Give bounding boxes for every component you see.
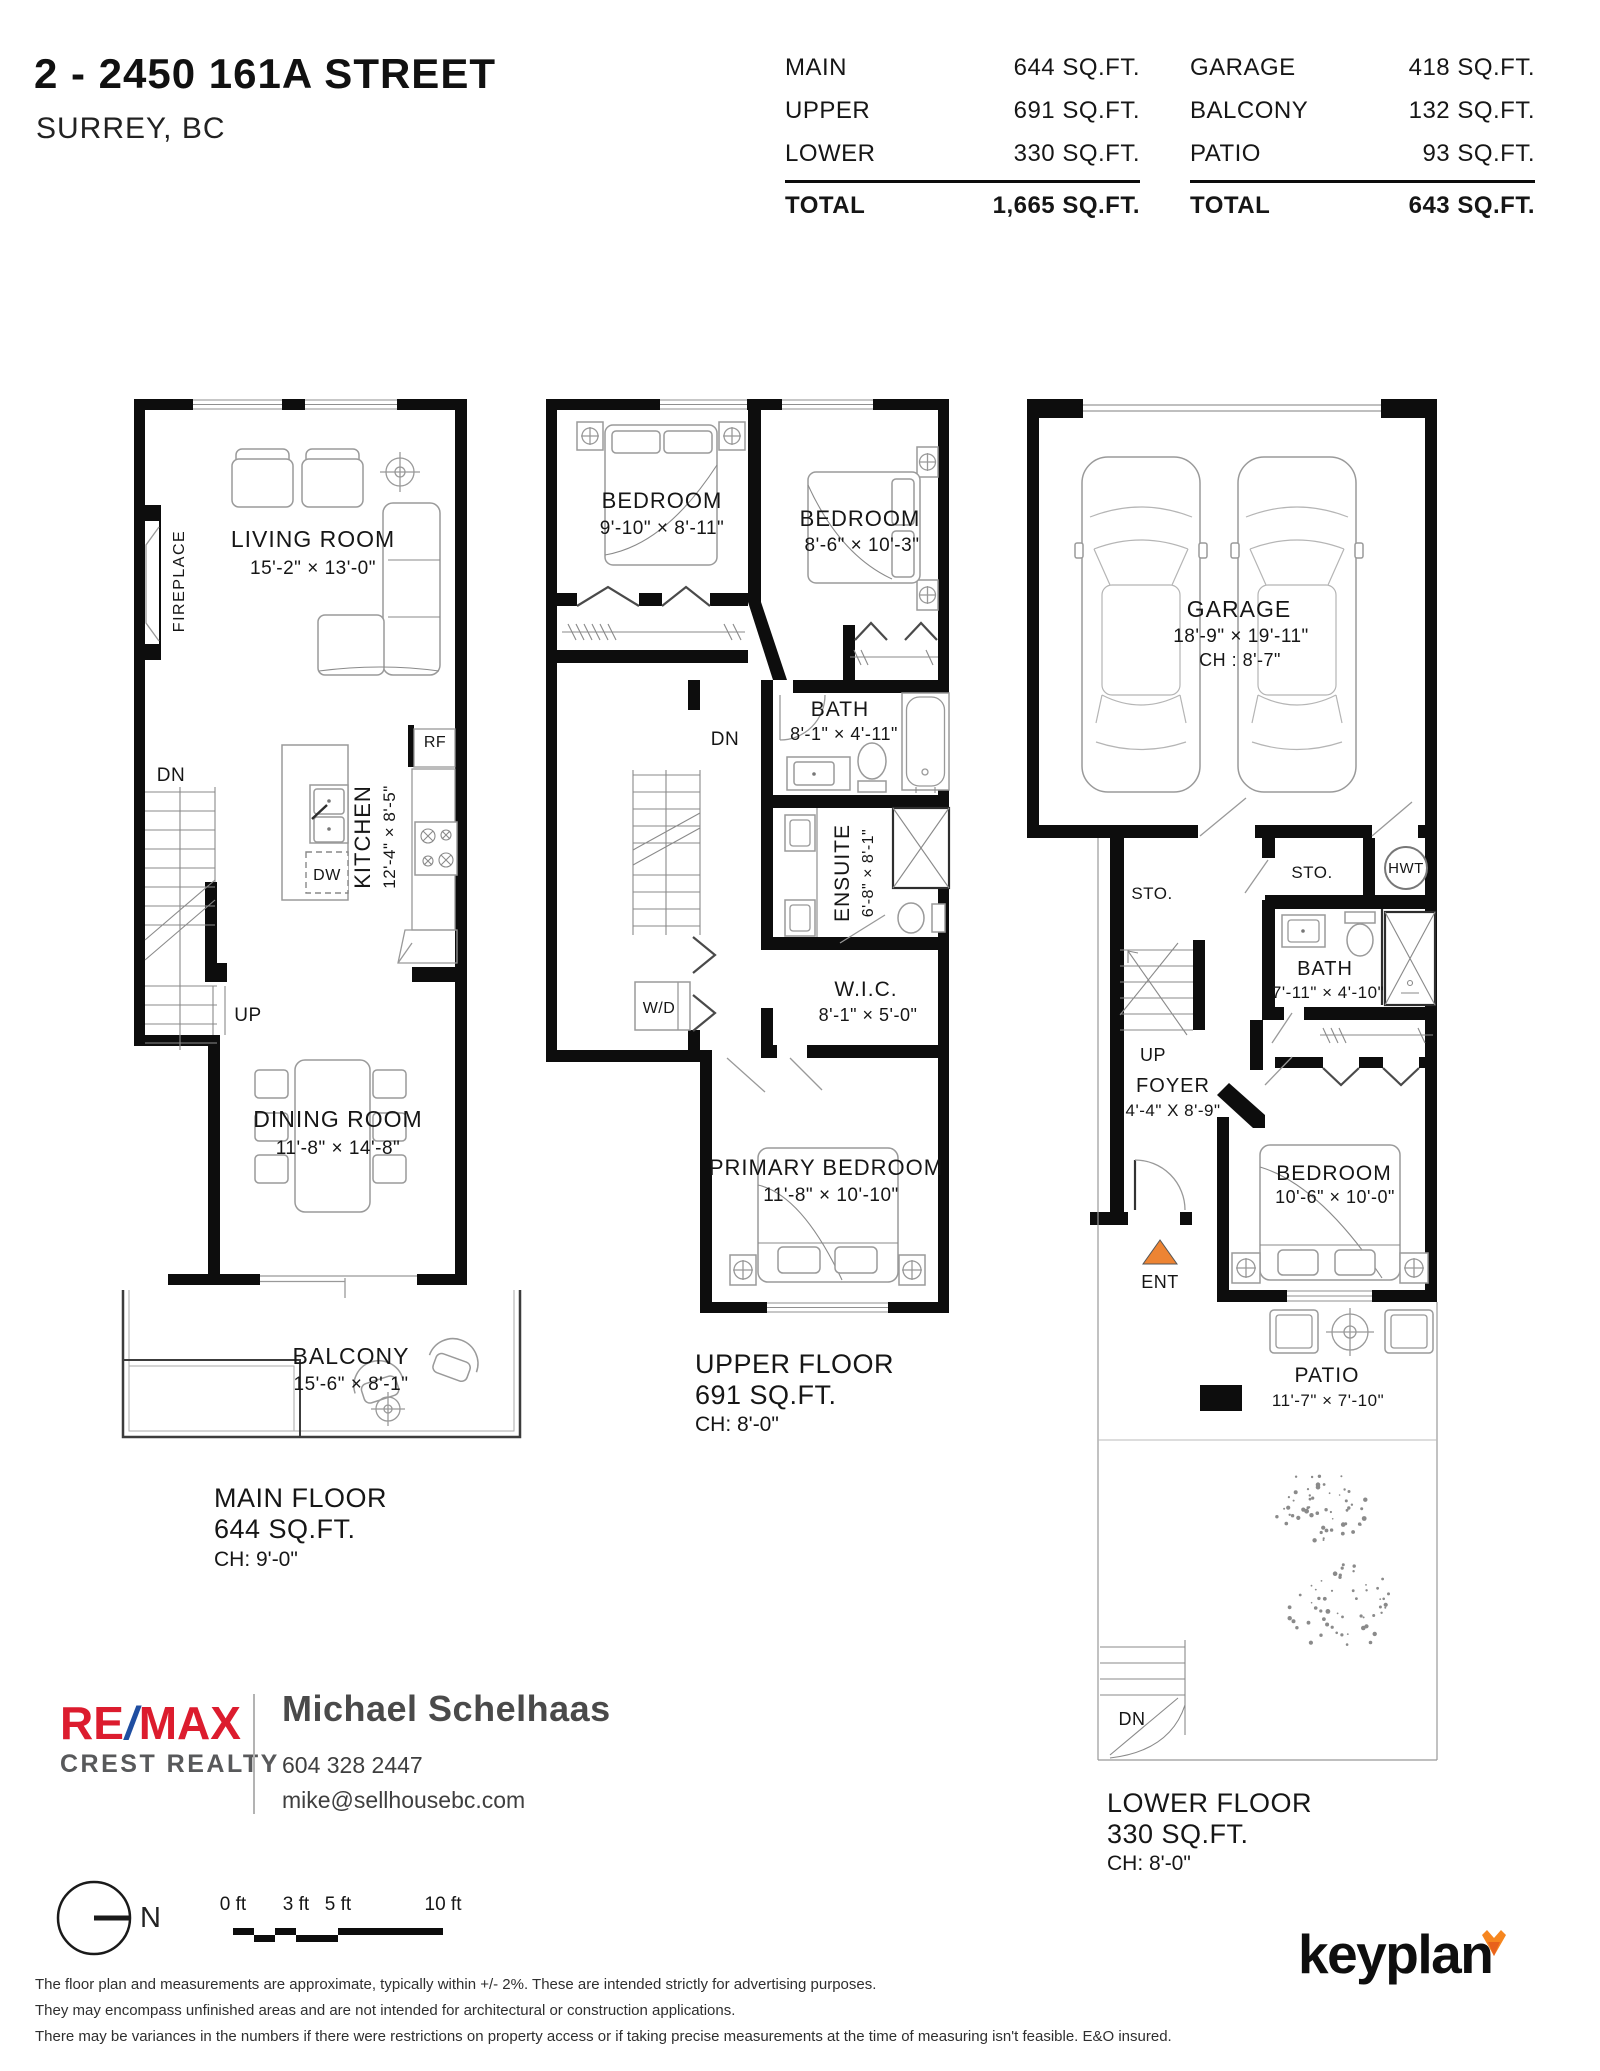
room-label: BEDROOM [1276, 1162, 1392, 1185]
lower-floor-plan: GARAGE 18'-9" × 19'-11" CH : 8'-7" STO. … [1020, 395, 1450, 1875]
ceiling-light-icon [380, 452, 420, 492]
keyplan-logo: keyplan [1298, 1922, 1492, 1986]
sliding-door [260, 1276, 417, 1298]
door-leaf [1245, 860, 1268, 893]
floorplan-sheet: 2 - 2450 161A STREET SURREY, BC MAIN 644… [0, 0, 1600, 2071]
table-row: UPPER 691 SQ.FT. [785, 89, 1140, 132]
stairs-up-label: UP [1140, 1045, 1166, 1065]
compass-icon [52, 1876, 142, 1964]
total-label: TOTAL [1190, 192, 1270, 220]
stairs [1120, 943, 1193, 1035]
row-value: 418 SQ.FT. [1409, 54, 1535, 82]
table-row: PATIO 93 SQ.FT. [1190, 132, 1535, 175]
disclaimer-line: They may encompass unfinished areas and … [35, 1998, 1555, 2024]
row-value: 330 SQ.FT. [1014, 140, 1140, 168]
brokerage-subname: CREST REALTY [60, 1750, 280, 1779]
row-label: GARAGE [1190, 54, 1296, 82]
agent-name: Michael Schelhaas [282, 1688, 611, 1730]
scale-tick: 5 ft [325, 1894, 352, 1915]
floor-caption-title: MAIN FLOOR [214, 1483, 387, 1513]
stairs [1100, 1640, 1185, 1758]
room-dims: 11'-8" × 14'-8" [276, 1138, 401, 1159]
room-label: BALCONY [293, 1343, 410, 1369]
room-dims: 7'-11" × 4'-10" [1272, 983, 1384, 1002]
total-value: 643 SQ.FT. [1409, 192, 1535, 220]
garage-door [1083, 405, 1381, 411]
room-ch: CH : 8'-7" [1199, 650, 1281, 670]
compass-north-label: N [140, 1902, 161, 1935]
dishwasher-label: DW [313, 867, 341, 884]
disclaimer-line: There may be variances in the numbers if… [35, 2024, 1555, 2050]
row-label: PATIO [1190, 140, 1261, 168]
logo-re: RE [60, 1697, 124, 1749]
logo-max: MAX [139, 1697, 241, 1749]
fireplace [145, 521, 159, 644]
storage-label: STO. [1131, 884, 1172, 903]
room-dims: 4'-4" X 8'-9" [1126, 1101, 1221, 1120]
washer-dryer-label: W/D [643, 1000, 676, 1017]
row-value: 691 SQ.FT. [1014, 97, 1140, 125]
table-total-row: TOTAL 643 SQ.FT. [1190, 183, 1535, 229]
row-value: 644 SQ.FT. [1014, 54, 1140, 82]
armchair [302, 449, 363, 507]
closet [1320, 1028, 1433, 1085]
room-label: KITCHEN [350, 785, 375, 889]
stairs [633, 770, 700, 935]
page-subtitle: SURREY, BC [36, 112, 226, 146]
floor-caption-ch: CH: 8'-0" [1107, 1852, 1191, 1875]
row-label: UPPER [785, 97, 870, 125]
balcony-chair [425, 1332, 485, 1386]
room-dims: 10'-6" × 10'-0" [1275, 1187, 1395, 1207]
dining-set [255, 1060, 406, 1212]
armchair [232, 449, 293, 507]
area-table-right: GARAGE 418 SQ.FT. BALCONY 132 SQ.FT. PAT… [1190, 46, 1535, 229]
kitchen-counter [398, 729, 457, 963]
row-label: MAIN [785, 54, 847, 82]
room-dims: 8'-1" × 5'-0" [819, 1005, 918, 1025]
room-dims: 6'-8" × 8'-1" [860, 829, 877, 917]
stairs-dn-label: DN [157, 765, 185, 786]
car [1075, 457, 1207, 792]
scale-tick: 3 ft [283, 1894, 310, 1915]
room-label: FOYER [1136, 1075, 1210, 1097]
garden-plants [1275, 1475, 1390, 1646]
room-label: BEDROOM [800, 506, 921, 531]
footer-divider [253, 1694, 255, 1814]
room-dims: 15'-6" × 8'-1" [294, 1374, 409, 1395]
room-label: W.I.C. [834, 978, 897, 1001]
total-value: 1,665 SQ.FT. [993, 192, 1140, 220]
room-label: GARAGE [1187, 596, 1291, 622]
floor-caption-ch: CH: 9'-0" [214, 1548, 298, 1571]
fridge-label: RF [424, 734, 446, 751]
door-fold-icon [693, 937, 715, 973]
room-dims: 11'-8" × 10'-10" [763, 1185, 899, 1206]
table-total-row: TOTAL 1,665 SQ.FT. [785, 183, 1140, 229]
entry-marker-icon [1143, 1240, 1177, 1264]
room-label: BATH [1297, 958, 1353, 980]
door-leaf [1200, 798, 1246, 836]
room-label: PATIO [1295, 1364, 1360, 1387]
floor-caption-area: 330 SQ.FT. [1107, 1819, 1249, 1849]
area-table-left: MAIN 644 SQ.FT. UPPER 691 SQ.FT. LOWER 3… [785, 46, 1140, 229]
scale-bar: 0 ft 3 ft 5 ft 10 ft [215, 1894, 465, 1952]
table-row: LOWER 330 SQ.FT. [785, 132, 1140, 175]
stairs-up-label: UP [234, 1005, 261, 1026]
row-value: 93 SQ.FT. [1422, 140, 1535, 168]
room-label: LIVING ROOM [231, 526, 395, 552]
keyplan-fox-icon [1482, 1930, 1506, 1956]
floor-caption-ch: CH: 8'-0" [695, 1413, 779, 1436]
car [1231, 457, 1363, 792]
floor-caption-area: 644 SQ.FT. [214, 1514, 356, 1544]
storage-label: STO. [1291, 863, 1332, 882]
room-dims: 9'-10" × 8'-11" [600, 518, 725, 539]
page-title: 2 - 2450 161A STREET [34, 50, 496, 98]
scale-tick: 10 ft [425, 1894, 463, 1915]
row-value: 132 SQ.FT. [1409, 97, 1535, 125]
row-label: LOWER [785, 140, 876, 168]
floor-caption-title: LOWER FLOOR [1107, 1788, 1312, 1818]
room-dims: 8'-6" × 10'-3" [805, 535, 920, 556]
room-dims: 15'-2" × 13'-0" [250, 558, 376, 579]
table-row: BALCONY 132 SQ.FT. [1190, 89, 1535, 132]
stairs-dn-label: DN [1119, 1709, 1146, 1729]
hwt-label: HWT [1388, 860, 1424, 877]
stairs-dn-label: DN [711, 729, 739, 750]
room-label: ENSUITE [831, 824, 854, 922]
scale-segments [233, 1928, 443, 1942]
door-leaf [1372, 802, 1412, 836]
room-label: BATH [811, 698, 869, 721]
window [1287, 1290, 1372, 1302]
room-dims: 8'-1" × 4'-11" [790, 724, 898, 744]
door-fold-icon [693, 995, 715, 1031]
brokerage-name: RE/MAX [60, 1700, 280, 1746]
entry-label: ENT [1141, 1272, 1179, 1292]
room-label: DINING ROOM [253, 1106, 422, 1132]
table-row: GARAGE 418 SQ.FT. [1190, 46, 1535, 89]
upper-floor-plan: BEDROOM 9'-10" × 8'-11" BEDROOM 8'-6" × … [540, 395, 960, 1440]
main-floor-plan: FIREPLACE LIVING ROOM 15'-2" × 13'-0" [105, 395, 535, 1575]
floor-caption-title: UPPER FLOOR [695, 1349, 894, 1379]
closet [850, 623, 938, 665]
total-label: TOTAL [785, 192, 865, 220]
room-label: PRIMARY BEDROOM [709, 1155, 943, 1180]
fireplace-label: FIREPLACE [171, 530, 188, 632]
row-label: BALCONY [1190, 97, 1308, 125]
logo-slash: / [124, 1697, 139, 1749]
table-row: MAIN 644 SQ.FT. [785, 46, 1140, 89]
room-dims: 12'-4" × 8'-5" [380, 785, 399, 889]
agent-email: mike@sellhousebc.com [282, 1787, 525, 1814]
room-dims: 18'-9" × 19'-11" [1173, 626, 1309, 647]
floor-caption-area: 691 SQ.FT. [695, 1380, 837, 1410]
agent-phone: 604 328 2447 [282, 1752, 423, 1779]
brokerage-logo: RE/MAX CREST REALTY [60, 1700, 280, 1779]
room-dims: 11'-7" × 7'-10" [1272, 1391, 1384, 1410]
room-label: BEDROOM [602, 488, 723, 513]
scale-tick: 0 ft [220, 1894, 247, 1915]
